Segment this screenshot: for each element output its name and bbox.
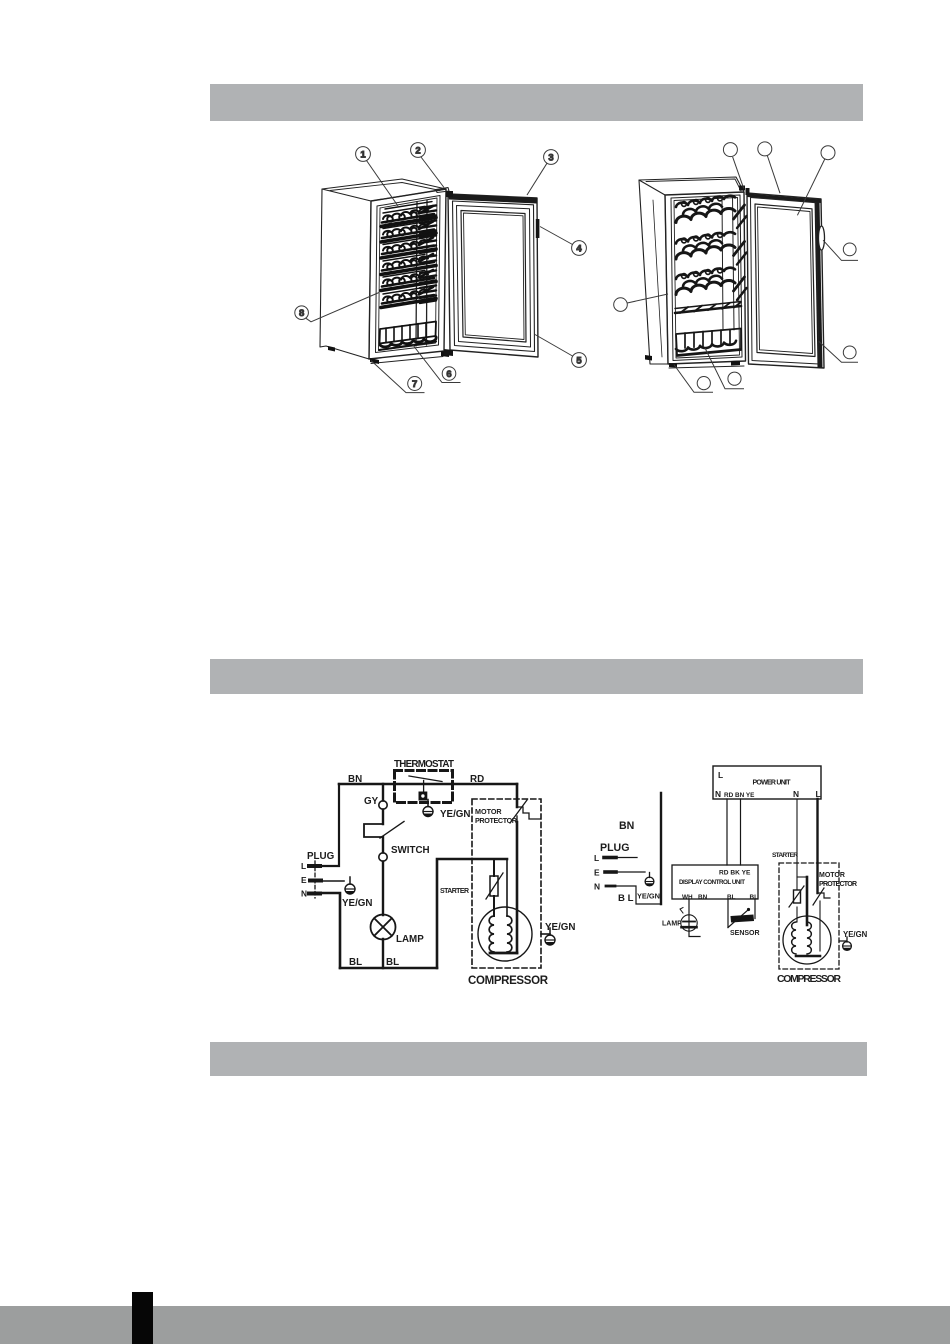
svg-text:PROTECTOR: PROTECTOR: [819, 881, 857, 888]
svg-text:YE/GN: YE/GN: [637, 892, 660, 901]
svg-text:PLUG: PLUG: [307, 851, 335, 862]
svg-text:E: E: [594, 868, 600, 878]
svg-text:RD: RD: [470, 774, 484, 785]
svg-text:1: 1: [360, 149, 366, 160]
svg-text:STARTER: STARTER: [440, 888, 469, 895]
svg-text:8: 8: [299, 308, 304, 319]
svg-text:L: L: [816, 789, 821, 799]
svg-text:YE/GN: YE/GN: [843, 930, 868, 939]
svg-text:BL: BL: [750, 894, 759, 901]
svg-text:RD BK YE: RD BK YE: [719, 870, 751, 877]
svg-text:L: L: [301, 861, 306, 871]
svg-text:MOTOR: MOTOR: [819, 872, 845, 879]
svg-text:MOTOR: MOTOR: [475, 807, 502, 816]
svg-text:GY: GY: [364, 796, 379, 807]
svg-text:DISPLAY CONTROL UNIT: DISPLAY CONTROL UNIT: [679, 879, 745, 886]
svg-text:YE/GN: YE/GN: [545, 922, 576, 933]
svg-text:B L: B L: [618, 893, 634, 904]
svg-text:BN: BN: [348, 774, 362, 785]
svg-text:N: N: [793, 789, 799, 799]
svg-text:2: 2: [415, 145, 420, 156]
svg-text:N: N: [715, 789, 721, 799]
svg-text:PROTECTOR: PROTECTOR: [475, 816, 518, 825]
svg-text:BN: BN: [619, 820, 634, 832]
svg-text:SENSOR: SENSOR: [730, 930, 760, 937]
svg-text:E: E: [301, 875, 307, 885]
svg-text:BL: BL: [349, 957, 362, 968]
svg-text:4: 4: [576, 243, 582, 254]
svg-text:N: N: [301, 889, 307, 899]
svg-text:BL: BL: [727, 894, 736, 901]
svg-text:WH: WH: [682, 894, 693, 901]
svg-text:L: L: [718, 770, 723, 780]
svg-text:LAMP: LAMP: [662, 921, 682, 928]
svg-text:SWITCH: SWITCH: [391, 845, 430, 856]
svg-text:3: 3: [548, 152, 553, 163]
svg-text:N: N: [594, 882, 600, 892]
svg-text:RD BN YE: RD BN YE: [724, 792, 755, 799]
svg-text:PLUG: PLUG: [600, 842, 629, 854]
svg-text:L: L: [594, 853, 599, 863]
svg-text:6: 6: [446, 369, 451, 380]
svg-text:COMPRESSOR: COMPRESSOR: [468, 975, 549, 987]
svg-text:POWER UNIT: POWER UNIT: [753, 780, 792, 787]
svg-text:STARTER: STARTER: [772, 852, 798, 859]
svg-text:BL: BL: [386, 957, 399, 968]
svg-text:BN: BN: [698, 894, 708, 901]
svg-text:YE/GN: YE/GN: [342, 898, 373, 909]
svg-text:5: 5: [576, 355, 582, 366]
svg-text:COMPRESSOR: COMPRESSOR: [777, 974, 841, 985]
svg-text:THERMOSTAT: THERMOSTAT: [394, 759, 454, 770]
svg-text:YE/GN: YE/GN: [440, 809, 471, 820]
svg-text:7: 7: [412, 379, 417, 390]
svg-text:LAMP: LAMP: [396, 934, 424, 945]
